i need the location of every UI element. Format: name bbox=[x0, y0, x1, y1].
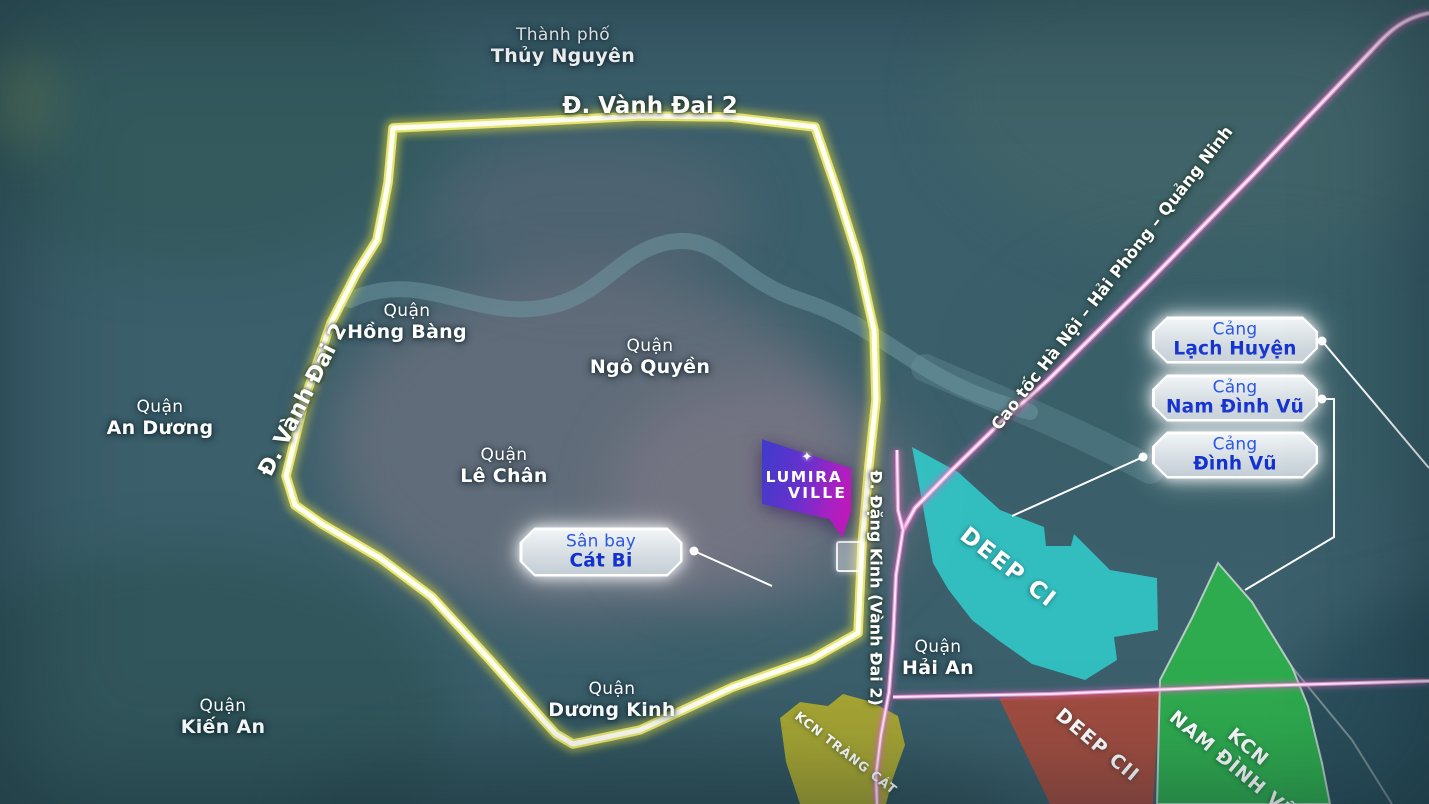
label-kien-an: Quận Kiến An bbox=[181, 696, 266, 738]
badge-port-lach-huyen: Cảng Lạch Huyện bbox=[1152, 317, 1318, 364]
label-ring-road-top: Đ. Vành Đai 2 bbox=[562, 93, 738, 119]
lumira-ville-logo: ✦ LUMIRA VILLE bbox=[762, 436, 852, 544]
label-ngo-quyen: Quận Ngô Quyền bbox=[590, 336, 710, 378]
label-thuy-nguyen: Thành phố Thủy Nguyên bbox=[491, 25, 635, 67]
label-duong-kinh: Quận Dương Kinh bbox=[548, 679, 675, 721]
location-map: Thành phố Thủy Nguyên Quận Hồng Bàng Quậ… bbox=[0, 0, 1429, 804]
badge-airport-cat-bi: Sân bay Cát Bi bbox=[520, 528, 683, 577]
project-site-marker bbox=[836, 541, 863, 572]
badge-port-dinh-vu: Cảng Đình Vũ bbox=[1152, 432, 1318, 479]
label-ring-road-east: Đ. Đặng Kinh (Vành Đai 2) bbox=[867, 470, 886, 706]
label-hai-an: Quận Hải An bbox=[902, 637, 974, 679]
sparkle-icon: ✦ bbox=[802, 450, 813, 465]
badge-port-nam-dinh-vu: Cảng Nam Đình Vũ bbox=[1152, 375, 1318, 422]
label-an-duong: Quận An Dương bbox=[107, 397, 214, 439]
label-hong-bang: Quận Hồng Bàng bbox=[347, 301, 467, 343]
ring-road bbox=[286, 116, 876, 744]
label-le-chan: Quận Lê Chân bbox=[460, 445, 548, 487]
